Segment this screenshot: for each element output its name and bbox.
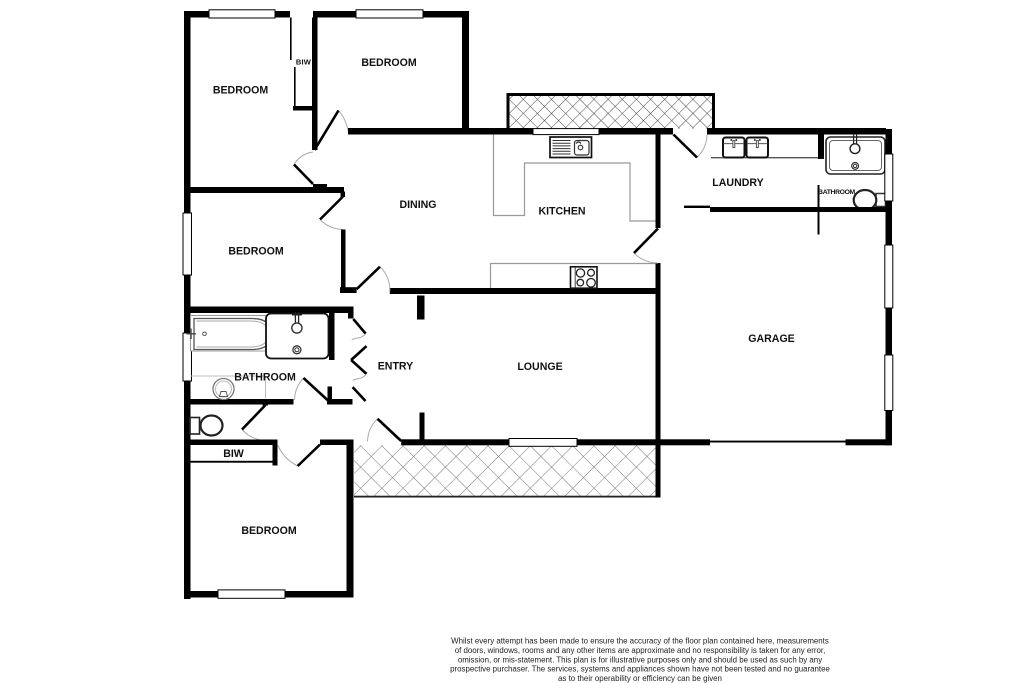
svg-text:LOUNGE: LOUNGE bbox=[517, 361, 562, 373]
svg-text:BEDROOM: BEDROOM bbox=[241, 525, 296, 537]
svg-text:BIW: BIW bbox=[296, 58, 312, 67]
svg-text:BATHROOM: BATHROOM bbox=[818, 189, 855, 196]
svg-text:GARAGE: GARAGE bbox=[748, 333, 795, 345]
svg-text:BATHROOM: BATHROOM bbox=[234, 372, 296, 384]
svg-text:KITCHEN: KITCHEN bbox=[538, 206, 585, 218]
svg-text:BEDROOM: BEDROOM bbox=[361, 57, 416, 69]
svg-text:Whilst every attempt has been: Whilst every attempt has been made to en… bbox=[451, 637, 829, 646]
svg-text:BIW: BIW bbox=[223, 448, 244, 460]
svg-text:BEDROOM: BEDROOM bbox=[213, 85, 268, 97]
svg-text:LAUNDRY: LAUNDRY bbox=[712, 177, 763, 189]
svg-text:of doors, windows, rooms and a: of doors, windows, rooms and any other i… bbox=[455, 646, 826, 655]
svg-text:BEDROOM: BEDROOM bbox=[228, 246, 283, 258]
svg-text:prospective purchaser. The ser: prospective purchaser. The services, sys… bbox=[450, 665, 830, 674]
svg-text:omission, or mis-statement. Th: omission, or mis-statement. This plan is… bbox=[458, 655, 822, 664]
svg-text:DINING: DINING bbox=[399, 199, 436, 211]
svg-text:as to their operability or eff: as to their operability or efficiency ca… bbox=[558, 674, 722, 683]
svg-text:ENTRY: ENTRY bbox=[378, 361, 414, 373]
